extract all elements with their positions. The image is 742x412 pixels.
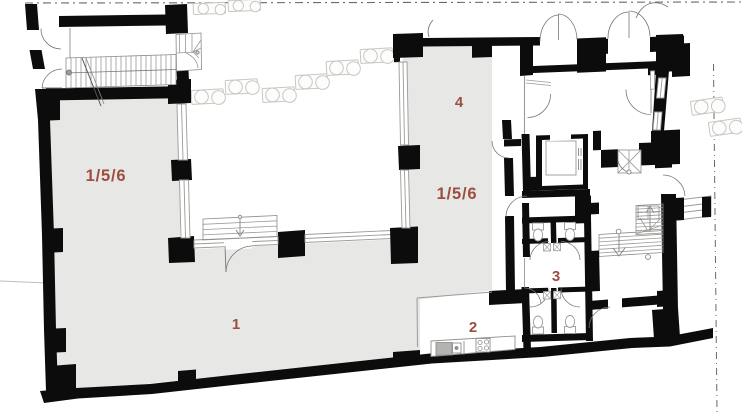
svg-text:1/5/6: 1/5/6 [437, 185, 478, 203]
svg-text:4: 4 [455, 94, 464, 111]
svg-text:3: 3 [552, 268, 560, 285]
svg-text:1/5/6: 1/5/6 [86, 167, 127, 185]
svg-text:2: 2 [469, 319, 477, 336]
svg-text:1: 1 [232, 316, 240, 333]
